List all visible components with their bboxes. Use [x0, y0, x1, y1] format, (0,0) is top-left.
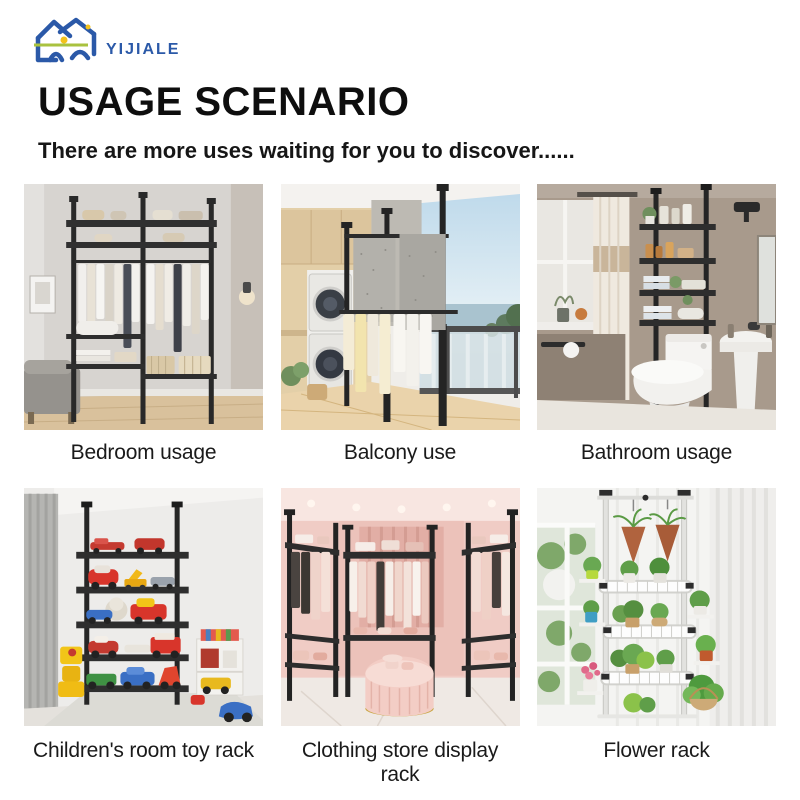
window	[537, 200, 599, 330]
caption-bedroom: Bedroom usage	[24, 441, 263, 465]
bedroom-photo	[24, 184, 263, 430]
picture-frame	[30, 276, 55, 313]
hanging-laundry	[343, 314, 431, 394]
center-ottoman	[365, 654, 433, 716]
card-flower-rack: Flower rack	[537, 488, 776, 787]
page-subtitle: There are more uses waiting for you to d…	[38, 138, 575, 164]
card-bedroom: Bedroom usage	[24, 184, 263, 488]
card-clothing-store: Clothing store display rack	[281, 488, 520, 787]
flower-rack-photo	[537, 488, 776, 726]
usage-scenario-page: YIJIALE USAGE SCENARIO There are more us…	[0, 0, 800, 800]
caption-children-room: Children's room toy rack	[24, 739, 263, 763]
mirror	[758, 236, 776, 324]
children-room-photo	[24, 488, 263, 726]
card-bathroom: Bathroom usage	[537, 184, 776, 488]
brand-logo: YIJIALE	[30, 14, 180, 66]
card-children-room: Children's room toy rack	[24, 488, 263, 787]
caption-balcony: Balcony use	[281, 441, 520, 465]
bathroom-photo	[537, 184, 776, 430]
page-title: USAGE SCENARIO	[38, 80, 410, 125]
brand-name: YIJIALE	[106, 41, 180, 66]
house-logo-icon	[30, 14, 102, 66]
curtain	[24, 494, 58, 709]
balcony-photo	[281, 184, 520, 430]
clothing-store-photo	[281, 488, 520, 726]
caption-clothing-store: Clothing store display rack	[281, 739, 520, 787]
caption-flower-rack: Flower rack	[537, 739, 776, 763]
caption-bathroom: Bathroom usage	[537, 441, 776, 465]
card-balcony: Balcony use	[281, 184, 520, 488]
scenario-grid: Bedroom usage	[24, 184, 776, 787]
